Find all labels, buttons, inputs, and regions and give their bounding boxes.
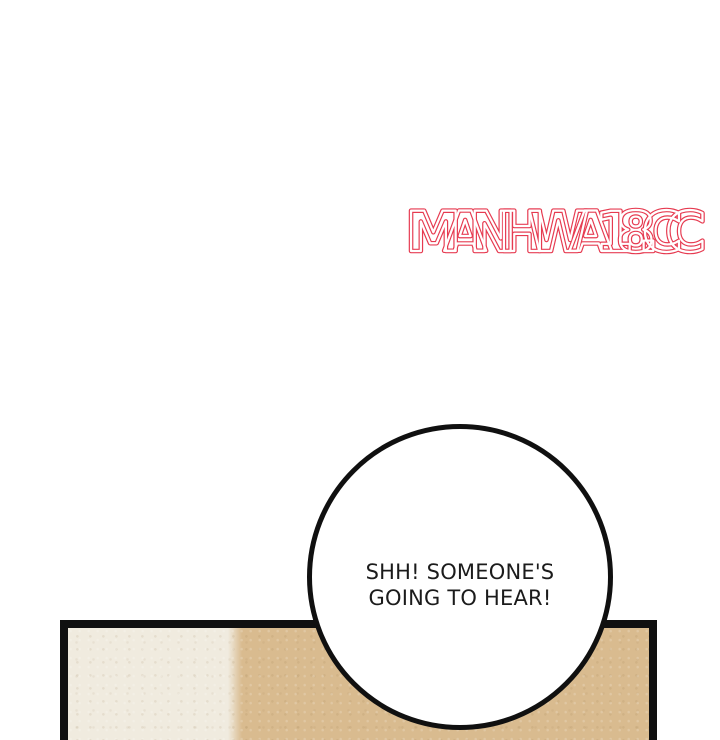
speech-line-1: SHH! SOMEONE'S bbox=[312, 559, 608, 585]
comic-page: { "page": { "background": "#ffffff" }, "… bbox=[0, 0, 720, 700]
watermark-svg: MANHWA18.CC MANHWA18.CC MANHWA18.CC bbox=[402, 199, 710, 263]
speech-bubble: SHH! SOMEONE'S GOING TO HEAR! bbox=[307, 424, 613, 730]
panel-wall-left bbox=[68, 628, 242, 740]
speech-bubble-text: SHH! SOMEONE'S GOING TO HEAR! bbox=[312, 559, 608, 611]
speech-line-2: GOING TO HEAR! bbox=[312, 585, 608, 611]
watermark-text-inline: MANHWA18.CC bbox=[406, 200, 706, 263]
site-watermark: MANHWA18.CC MANHWA18.CC MANHWA18.CC bbox=[402, 199, 710, 263]
